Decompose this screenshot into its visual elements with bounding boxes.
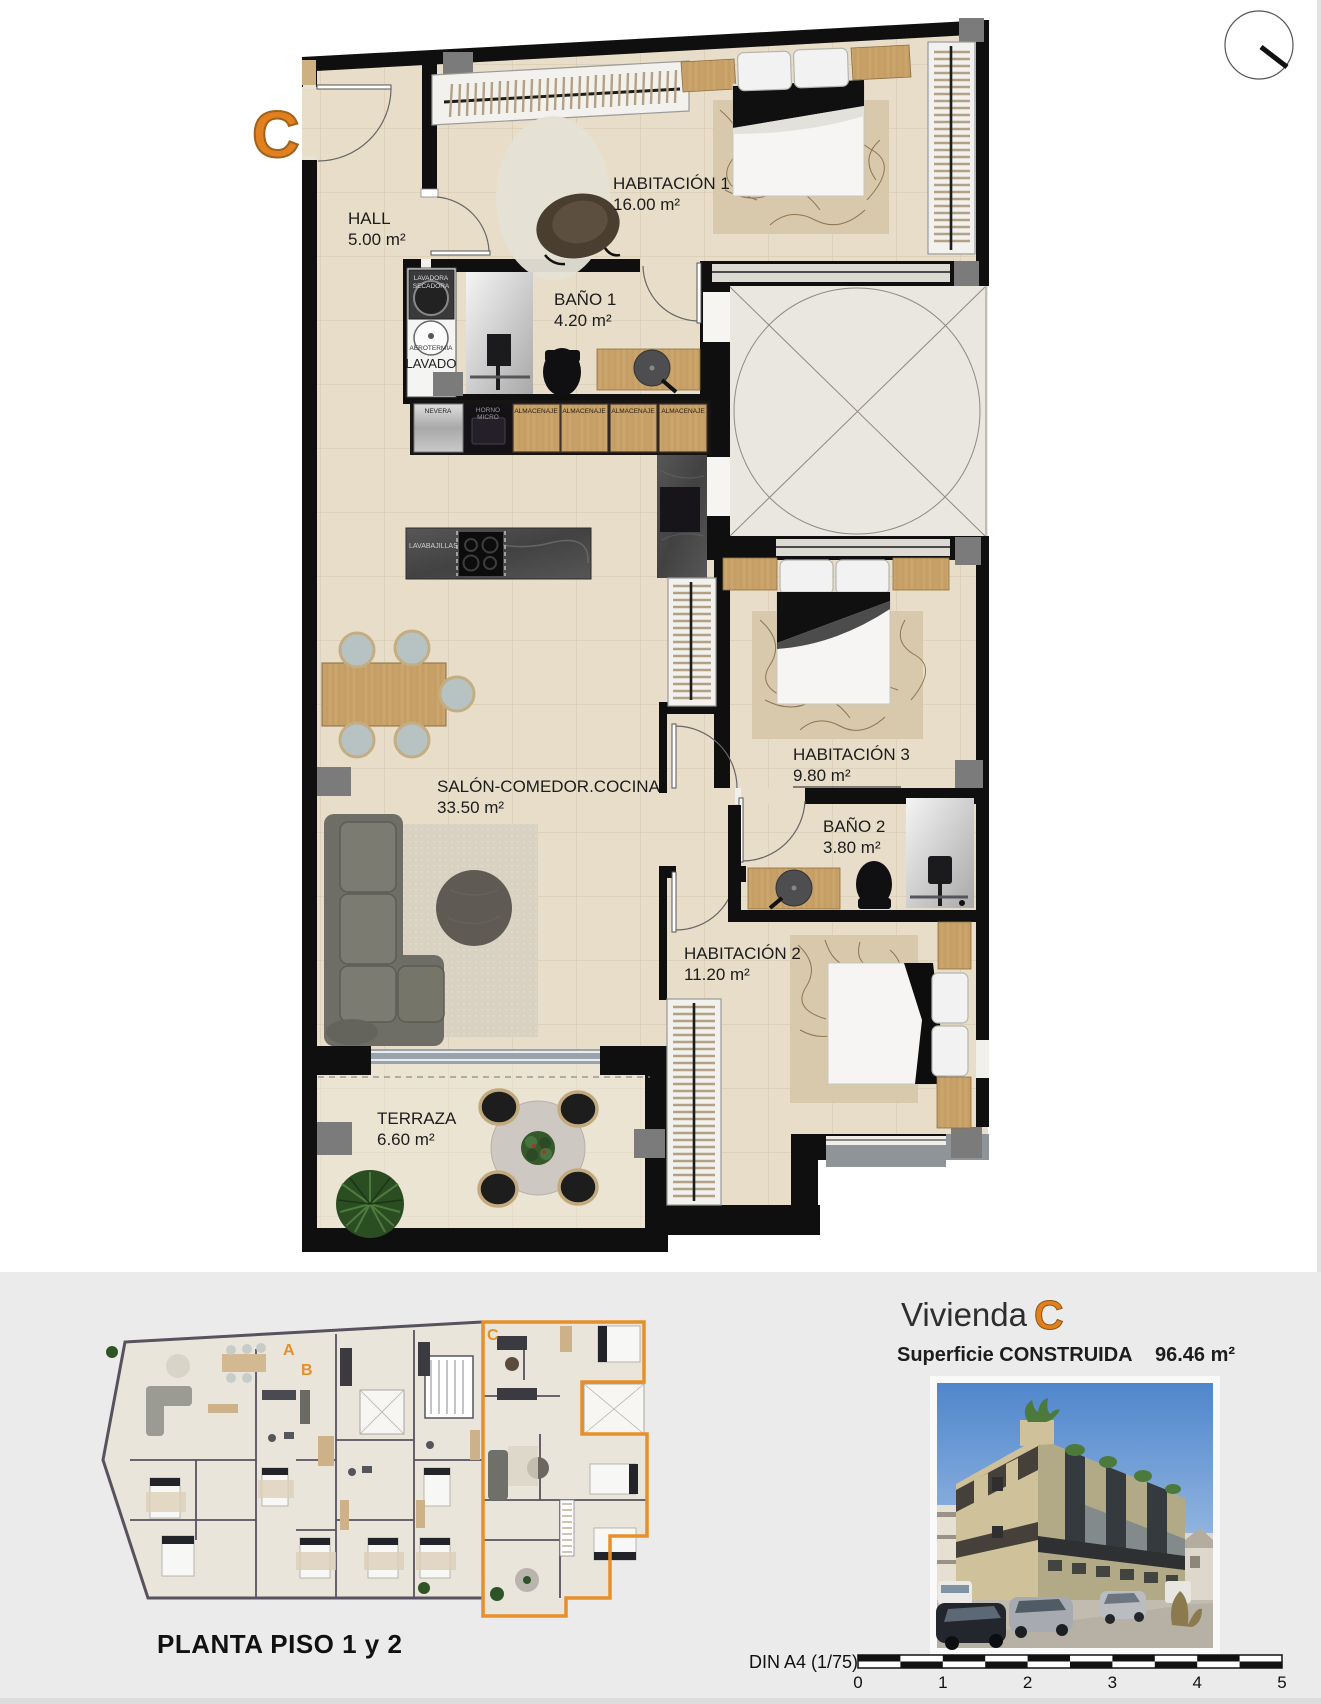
svg-text:NEVERA: NEVERA [425,408,452,415]
svg-text:SALÓN-COMEDOR.COCINA: SALÓN-COMEDOR.COCINA [437,777,661,796]
svg-text:9.80 m²: 9.80 m² [793,766,851,785]
svg-text:HORNO: HORNO [476,407,500,414]
svg-text:LAVADORA: LAVADORA [414,275,449,282]
svg-text:5: 5 [1277,1673,1286,1692]
svg-text:3.80 m²: 3.80 m² [823,838,881,857]
svg-text:DIN A4 (1/75): DIN A4 (1/75) [749,1652,858,1672]
svg-text:A: A [283,1342,295,1359]
svg-text:ALMACENAJE: ALMACENAJE [611,408,655,415]
svg-text:C: C [252,97,300,171]
svg-text:4: 4 [1192,1673,1201,1692]
svg-text:HABITACIÓN 2: HABITACIÓN 2 [684,944,801,963]
svg-text:C: C [1034,1292,1064,1338]
svg-text:C: C [487,1327,499,1344]
svg-text:16.00 m²: 16.00 m² [613,195,680,214]
svg-text:ALMACENAJE: ALMACENAJE [661,408,705,415]
svg-text:33.50 m²: 33.50 m² [437,798,504,817]
svg-text:ALMACENAJE: ALMACENAJE [514,408,558,415]
svg-text:Vivienda: Vivienda [901,1296,1028,1333]
svg-text:BAÑO 1: BAÑO 1 [554,290,616,309]
svg-text:4.20 m²: 4.20 m² [554,311,612,330]
svg-text:2: 2 [1023,1673,1032,1692]
svg-text:Superficie CONSTRUIDA: Superficie CONSTRUIDA [897,1344,1133,1366]
svg-text:96.46 m²: 96.46 m² [1155,1344,1235,1366]
svg-text:HABITACIÓN 1: HABITACIÓN 1 [613,174,730,193]
svg-text:HALL: HALL [348,209,391,228]
svg-text:LAVADO: LAVADO [406,356,457,371]
svg-text:6.60 m²: 6.60 m² [377,1130,435,1149]
svg-text:PLANTA PISO 1 y 2: PLANTA PISO 1 y 2 [157,1629,402,1659]
svg-text:SECADORA: SECADORA [413,283,450,290]
svg-text:LAVABAJILLAS: LAVABAJILLAS [409,543,458,550]
svg-text:11.20 m²: 11.20 m² [684,965,750,984]
svg-text:ALMACENAJE: ALMACENAJE [562,408,606,415]
svg-text:0: 0 [853,1673,862,1692]
svg-text:AEROTERMIA: AEROTERMIA [410,345,454,352]
svg-text:3: 3 [1108,1673,1117,1692]
svg-text:1: 1 [938,1673,947,1692]
svg-text:HABITACIÓN 3: HABITACIÓN 3 [793,745,910,764]
svg-text:BAÑO 2: BAÑO 2 [823,817,885,836]
svg-text:B: B [301,1362,313,1379]
svg-text:5.00 m²: 5.00 m² [348,230,406,249]
svg-text:MICRO: MICRO [477,414,499,421]
svg-text:TERRAZA: TERRAZA [377,1109,457,1128]
